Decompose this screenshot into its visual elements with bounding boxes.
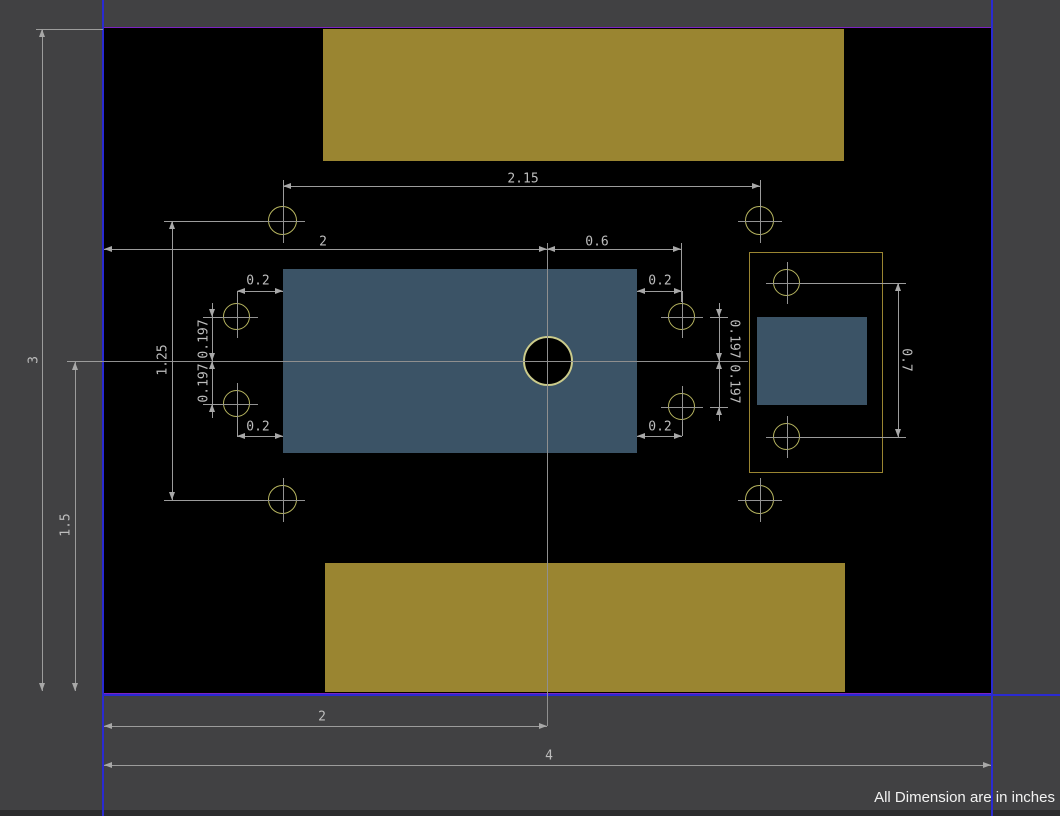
dimension-line: [75, 361, 76, 691]
dimension-arrow: [983, 762, 991, 768]
dimension-label[interactable]: 0.7: [900, 348, 913, 371]
dimension-line: [710, 317, 728, 318]
dimension-arrow: [209, 309, 215, 317]
drill-crosshair-v: [682, 296, 683, 338]
drill-crosshair-v: [760, 478, 761, 522]
dimension-arrow: [539, 246, 547, 252]
dimension-line: [682, 291, 683, 302]
dimension-label[interactable]: 0.2: [246, 421, 269, 434]
dimension-label[interactable]: 2.15: [507, 173, 538, 186]
drill-crosshair-v: [787, 262, 788, 304]
dimension-line: [547, 249, 681, 250]
dimension-label[interactable]: 0.2: [246, 275, 269, 288]
dimension-label[interactable]: 2: [318, 711, 326, 724]
dimension-arrow: [169, 492, 175, 500]
dimension-arrow: [674, 433, 682, 439]
drill-crosshair-v: [237, 296, 238, 338]
dimension-arrow: [547, 246, 555, 252]
dimension-arrow: [237, 288, 245, 294]
dimension-label[interactable]: 0.197: [198, 363, 211, 402]
dimension-line: [682, 422, 683, 436]
dimension-label[interactable]: 0.197: [198, 319, 211, 358]
dimension-line: [172, 221, 173, 500]
dimension-arrow: [895, 283, 901, 291]
dimension-arrow: [283, 183, 291, 189]
dimension-line: [760, 180, 761, 207]
dimension-label[interactable]: 4: [545, 750, 553, 763]
dimension-label[interactable]: 0.197: [728, 364, 741, 403]
dimension-label[interactable]: 0.6: [585, 236, 608, 249]
dimension-line: [203, 317, 222, 318]
dimension-arrow: [716, 361, 722, 369]
dimension-line: [164, 221, 264, 222]
dimension-label[interactable]: 1.25: [157, 344, 170, 375]
dimension-arrow: [275, 433, 283, 439]
dimension-line: [104, 726, 547, 727]
pad-top[interactable]: [323, 29, 844, 161]
dimension-arrow: [674, 288, 682, 294]
dimension-arrow: [209, 404, 215, 412]
dimension-line: [42, 29, 43, 691]
dimension-arrow: [104, 246, 112, 252]
dimension-label[interactable]: 3: [28, 356, 41, 364]
dimension-label[interactable]: 0.2: [648, 421, 671, 434]
dimension-arrow: [716, 353, 722, 361]
dimension-arrow: [539, 723, 547, 729]
dimension-arrow: [39, 29, 45, 37]
dimension-arrow: [104, 723, 112, 729]
dimension-arrow: [716, 407, 722, 415]
dimension-arrow: [716, 309, 722, 317]
dimension-arrow: [752, 183, 760, 189]
dimension-arrow: [72, 683, 78, 691]
dimension-line: [800, 437, 906, 438]
dimension-line: [104, 765, 991, 766]
dimension-label[interactable]: 2: [319, 236, 327, 249]
drill-crosshair-v: [787, 416, 788, 458]
units-note: All Dimension are in inches: [874, 789, 1055, 806]
cad-canvas: 2.1520.60.20.20.20.20.1970.1970.1970.197…: [0, 0, 1060, 816]
pad-bottom[interactable]: [325, 563, 845, 692]
dimension-arrow: [895, 429, 901, 437]
drill-crosshair-v: [237, 383, 238, 425]
sheet-guide-bottom: [102, 694, 1060, 696]
dimension-line: [164, 500, 264, 501]
dimension-arrow: [104, 762, 112, 768]
dimension-arrow: [637, 433, 645, 439]
dimension-label[interactable]: 0.2: [648, 275, 671, 288]
connector-body[interactable]: [757, 317, 867, 405]
drill-crosshair-v: [283, 478, 284, 522]
dimension-label[interactable]: 0.197: [728, 319, 741, 358]
centerline-horizontal: [73, 361, 748, 362]
dimension-line: [800, 283, 906, 284]
dimension-arrow: [275, 288, 283, 294]
dimension-arrow: [673, 246, 681, 252]
dimension-arrow: [637, 288, 645, 294]
centerline-vertical: [547, 243, 548, 726]
dimension-label[interactable]: 1.5: [60, 513, 73, 536]
dimension-arrow: [39, 683, 45, 691]
dimension-arrow: [169, 221, 175, 229]
dimension-line: [36, 29, 103, 30]
dimension-arrow: [72, 362, 78, 370]
window-edge: [0, 810, 1060, 816]
dimension-arrow: [237, 433, 245, 439]
